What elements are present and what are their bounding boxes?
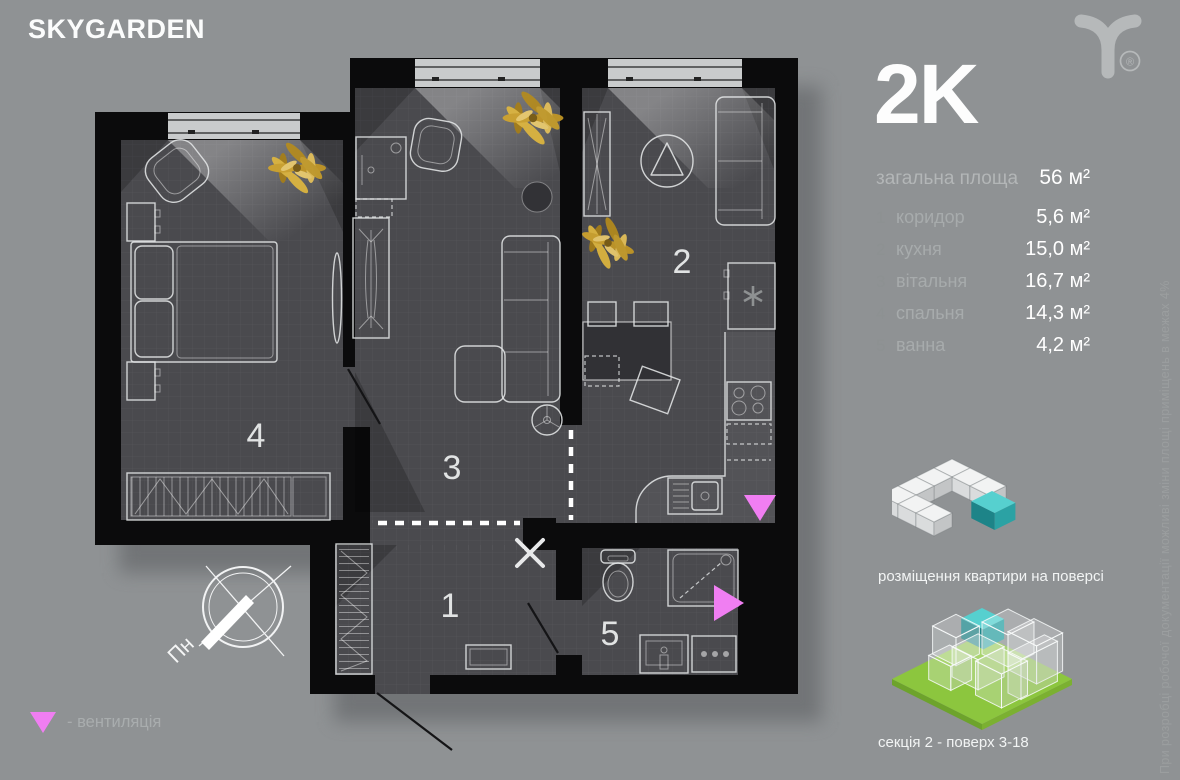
total-area-value: 56 м² — [1039, 166, 1090, 190]
window-kitchen — [608, 59, 742, 87]
total-area-row: загальна площа 56 м² — [876, 166, 1090, 190]
compass: Пн — [163, 566, 291, 668]
table-row: 3 вітальня 16,7 м² — [876, 270, 1090, 293]
floor-plan: 1 2 3 4 5 Пн — [0, 0, 850, 780]
room-label-5: 5 — [601, 615, 620, 653]
side-table — [522, 182, 552, 212]
disclaimer-text: При розробці робочої документації можлив… — [1158, 229, 1172, 774]
room-label-3: 3 — [443, 449, 462, 487]
vent-triangle-icon — [30, 712, 56, 733]
table-row: 5 ванна 4,2 м² — [876, 334, 1090, 357]
svg-text:®: ® — [1126, 57, 1134, 69]
room-label-2: 2 — [673, 243, 692, 281]
total-area-label: загальна площа — [876, 168, 1018, 190]
table-row: 2 кухня 15,0 м² — [876, 238, 1090, 261]
table-row: 1 коридор 5,6 м² — [876, 206, 1090, 229]
compass-north-label: Пн — [163, 633, 198, 668]
floor-position-caption: розміщення квартири на поверсі — [878, 568, 1118, 585]
window-living — [415, 59, 540, 87]
floor-position-diagram — [892, 448, 1077, 566]
window-bedroom — [168, 113, 300, 139]
hall-wardrobe — [336, 544, 372, 674]
brand-y-icon: ® — [1068, 10, 1150, 82]
room-label-1: 1 — [441, 587, 460, 625]
room-label-4: 4 — [247, 417, 266, 455]
table-row: 4 спальня 14,3 м² — [876, 302, 1090, 325]
area-table: загальна площа 56 м² 1 коридор 5,6 м² 2 … — [876, 166, 1090, 366]
section-diagram — [862, 592, 1112, 742]
vent-legend-label: - вентиляція — [67, 713, 161, 732]
poster: SKYGARDEN ® 2K загальна площа 56 м² 1 ко… — [0, 0, 1180, 780]
vent-legend: - вентиляція — [30, 712, 161, 733]
section-caption: секція 2 - поверх 3-18 — [878, 734, 1118, 751]
apartment-type: 2K — [874, 52, 977, 136]
